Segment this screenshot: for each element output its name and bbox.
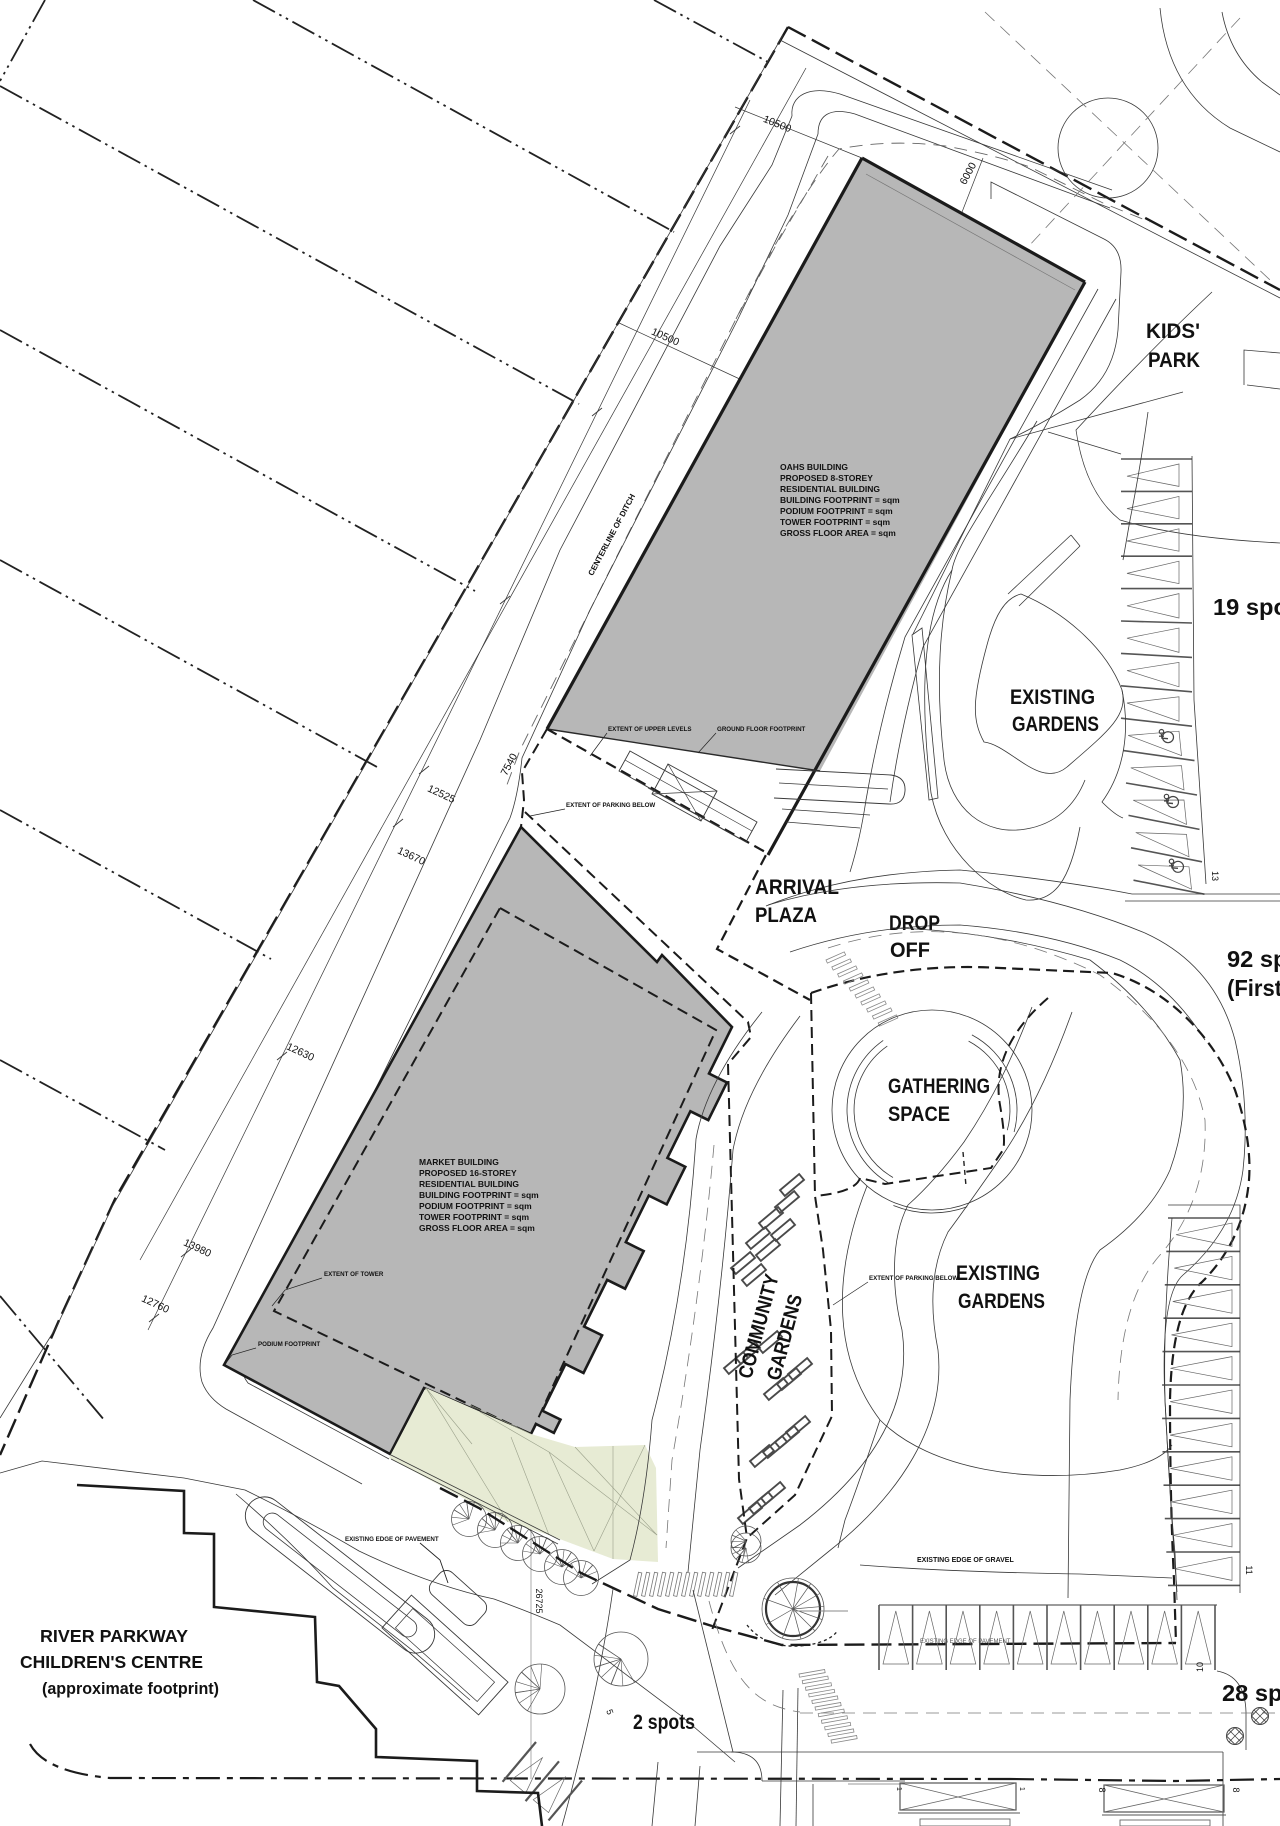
svg-text:TOWER FOOTPRINT = sqm: TOWER FOOTPRINT = sqm (419, 1212, 530, 1222)
svg-text:2 spots: 2 spots (633, 1711, 695, 1734)
svg-text:10: 10 (1195, 1662, 1205, 1672)
svg-text:28 spots: 28 spots (1222, 1680, 1280, 1706)
svg-text:26725: 26725 (534, 1588, 544, 1613)
svg-text:BUILDING FOOTPRINT = sqm: BUILDING FOOTPRINT = sqm (780, 495, 900, 505)
svg-text:PARK: PARK (1148, 348, 1200, 372)
svg-text:EXTENT OF PARKING BELOW: EXTENT OF PARKING BELOW (869, 1275, 958, 1282)
svg-text:BUILDING FOOTPRINT = sqm: BUILDING FOOTPRINT = sqm (419, 1190, 539, 1200)
svg-text:SPACE: SPACE (888, 1102, 950, 1126)
svg-text:19 spots: 19 spots (1213, 594, 1280, 620)
svg-text:RIVER PARKWAY: RIVER PARKWAY (40, 1626, 188, 1646)
svg-text:EXTENT OF TOWER: EXTENT OF TOWER (324, 1271, 384, 1278)
svg-text:ARRIVAL: ARRIVAL (755, 875, 839, 899)
svg-text:PODIUM FOOTPRINT = sqm: PODIUM FOOTPRINT = sqm (419, 1201, 532, 1211)
svg-text:PLAZA: PLAZA (755, 903, 817, 927)
svg-text:8: 8 (1231, 1787, 1241, 1792)
svg-text:GARDENS: GARDENS (958, 1289, 1045, 1313)
svg-text:OFF: OFF (890, 938, 930, 962)
svg-text:92 spots: 92 spots (1227, 946, 1280, 972)
svg-text:OAHS BUILDING: OAHS BUILDING (780, 462, 848, 472)
svg-text:RESIDENTIAL BUILDING: RESIDENTIAL BUILDING (780, 484, 880, 494)
svg-text:(approximate footprint): (approximate footprint) (42, 1679, 219, 1698)
svg-text:EXISTING EDGE OF GRAVEL: EXISTING EDGE OF GRAVEL (917, 1557, 1014, 1564)
svg-text:EXTENT OF UPPER LEVELS: EXTENT OF UPPER LEVELS (608, 726, 692, 733)
svg-text:EXISTING EDGE OF PAVEMENT: EXISTING EDGE OF PAVEMENT (920, 1639, 1011, 1645)
svg-text:PODIUM FOOTPRINT: PODIUM FOOTPRINT (258, 1341, 320, 1348)
svg-text:CHILDREN'S CENTRE: CHILDREN'S CENTRE (20, 1652, 203, 1672)
svg-text:1: 1 (895, 1787, 902, 1791)
svg-text:GROSS FLOOR AREA = sqm: GROSS FLOOR AREA = sqm (780, 528, 896, 538)
svg-text:GROUND FLOOR FOOTPRINT: GROUND FLOOR FOOTPRINT (717, 726, 806, 733)
svg-text:EXTENT OF PARKING BELOW: EXTENT OF PARKING BELOW (566, 802, 655, 809)
svg-text:11: 11 (1244, 1565, 1254, 1574)
svg-text:PROPOSED 8-STOREY: PROPOSED 8-STOREY (780, 473, 873, 483)
svg-text:PROPOSED 16-STOREY: PROPOSED 16-STOREY (419, 1168, 517, 1178)
svg-text:(First Unit: (First Unit (1227, 975, 1280, 1001)
svg-text:KIDS': KIDS' (1146, 319, 1200, 343)
svg-text:8: 8 (1097, 1787, 1107, 1792)
svg-text:EXISTING EDGE OF PAVEMENT: EXISTING EDGE OF PAVEMENT (345, 1536, 439, 1543)
svg-text:GATHERING: GATHERING (888, 1074, 990, 1098)
svg-text:13: 13 (1210, 871, 1220, 881)
svg-text:GARDENS: GARDENS (1012, 712, 1099, 736)
svg-text:RESIDENTIAL BUILDING: RESIDENTIAL BUILDING (419, 1179, 519, 1189)
svg-text:EXISTING: EXISTING (1010, 685, 1095, 709)
svg-text:1: 1 (1018, 1787, 1025, 1791)
svg-text:GROSS FLOOR AREA = sqm: GROSS FLOOR AREA = sqm (419, 1223, 535, 1233)
svg-text:MARKET BUILDING: MARKET BUILDING (419, 1157, 499, 1167)
svg-text:EXISTING: EXISTING (956, 1261, 1040, 1285)
svg-text:PODIUM FOOTPRINT = sqm: PODIUM FOOTPRINT = sqm (780, 506, 893, 516)
svg-text:TOWER FOOTPRINT = sqm: TOWER FOOTPRINT = sqm (780, 517, 891, 527)
